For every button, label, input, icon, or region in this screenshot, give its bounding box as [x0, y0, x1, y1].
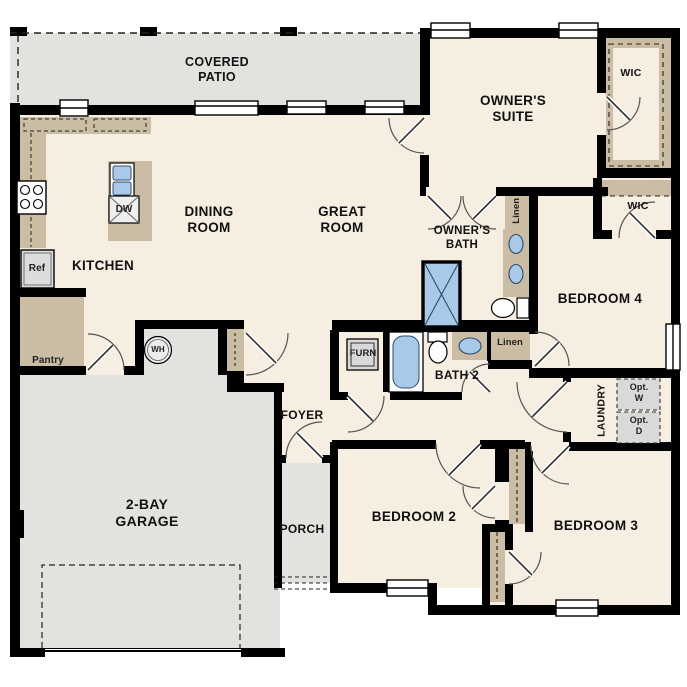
label-wic1: WIC	[611, 67, 651, 80]
patio-post	[10, 27, 27, 36]
room-foyer	[276, 385, 336, 463]
patio-post	[280, 27, 297, 36]
label-opt-w: Opt. W	[626, 382, 652, 404]
label-ref: Ref	[22, 263, 52, 275]
sink-icon	[509, 235, 523, 254]
label-dw: DW	[110, 204, 138, 216]
garage-floor-east	[227, 390, 280, 650]
toilet-icon	[492, 298, 530, 318]
label-bath2: BATH 2	[424, 368, 490, 383]
label-pantry: Pantry	[24, 355, 72, 367]
label-garage: 2-BAY GARAGE	[111, 496, 183, 530]
label-opt-d: Opt. D	[626, 415, 652, 437]
label-bedroom3: BEDROOM 3	[536, 518, 656, 534]
label-kitchen: KITCHEN	[55, 258, 151, 274]
label-covered-patio: COVERED PATIO	[177, 55, 257, 86]
label-linen1: Linen	[511, 194, 523, 228]
range-icon	[17, 181, 46, 214]
kitchen-sink-icon	[110, 163, 134, 198]
label-porch: PORCH	[276, 522, 328, 537]
sink-icon	[509, 265, 523, 284]
label-bedroom2: BEDROOM 2	[354, 509, 474, 525]
bathtub-icon	[389, 332, 423, 392]
patio-post	[140, 27, 157, 36]
wic2-shelf	[601, 180, 671, 196]
floor-plan: COVERED PATIO OWNER'S SUITE WIC WIC DINI…	[0, 0, 687, 687]
label-furn: FURN	[346, 348, 380, 360]
label-wic2: WIC	[618, 200, 658, 213]
toilet-icon	[428, 332, 447, 363]
sink-icon	[459, 338, 481, 354]
label-wh: WH	[146, 345, 170, 355]
label-owners-bath: OWNER'S BATH	[428, 224, 496, 252]
label-great-room: GREAT ROOM	[307, 204, 377, 237]
label-owners-suite: OWNER'S SUITE	[470, 93, 556, 126]
label-bedroom4: BEDROOM 4	[540, 291, 660, 307]
floor-plan-drawing	[0, 0, 687, 687]
label-dining-room: DINING ROOM	[174, 204, 244, 237]
label-laundry: LAUNDRY	[596, 378, 609, 442]
shower-icon	[423, 262, 460, 327]
label-foyer: FOYER	[274, 408, 330, 423]
wic1-floor	[613, 48, 659, 160]
label-linen2: Linen	[491, 337, 529, 349]
wall-notch	[10, 510, 24, 538]
